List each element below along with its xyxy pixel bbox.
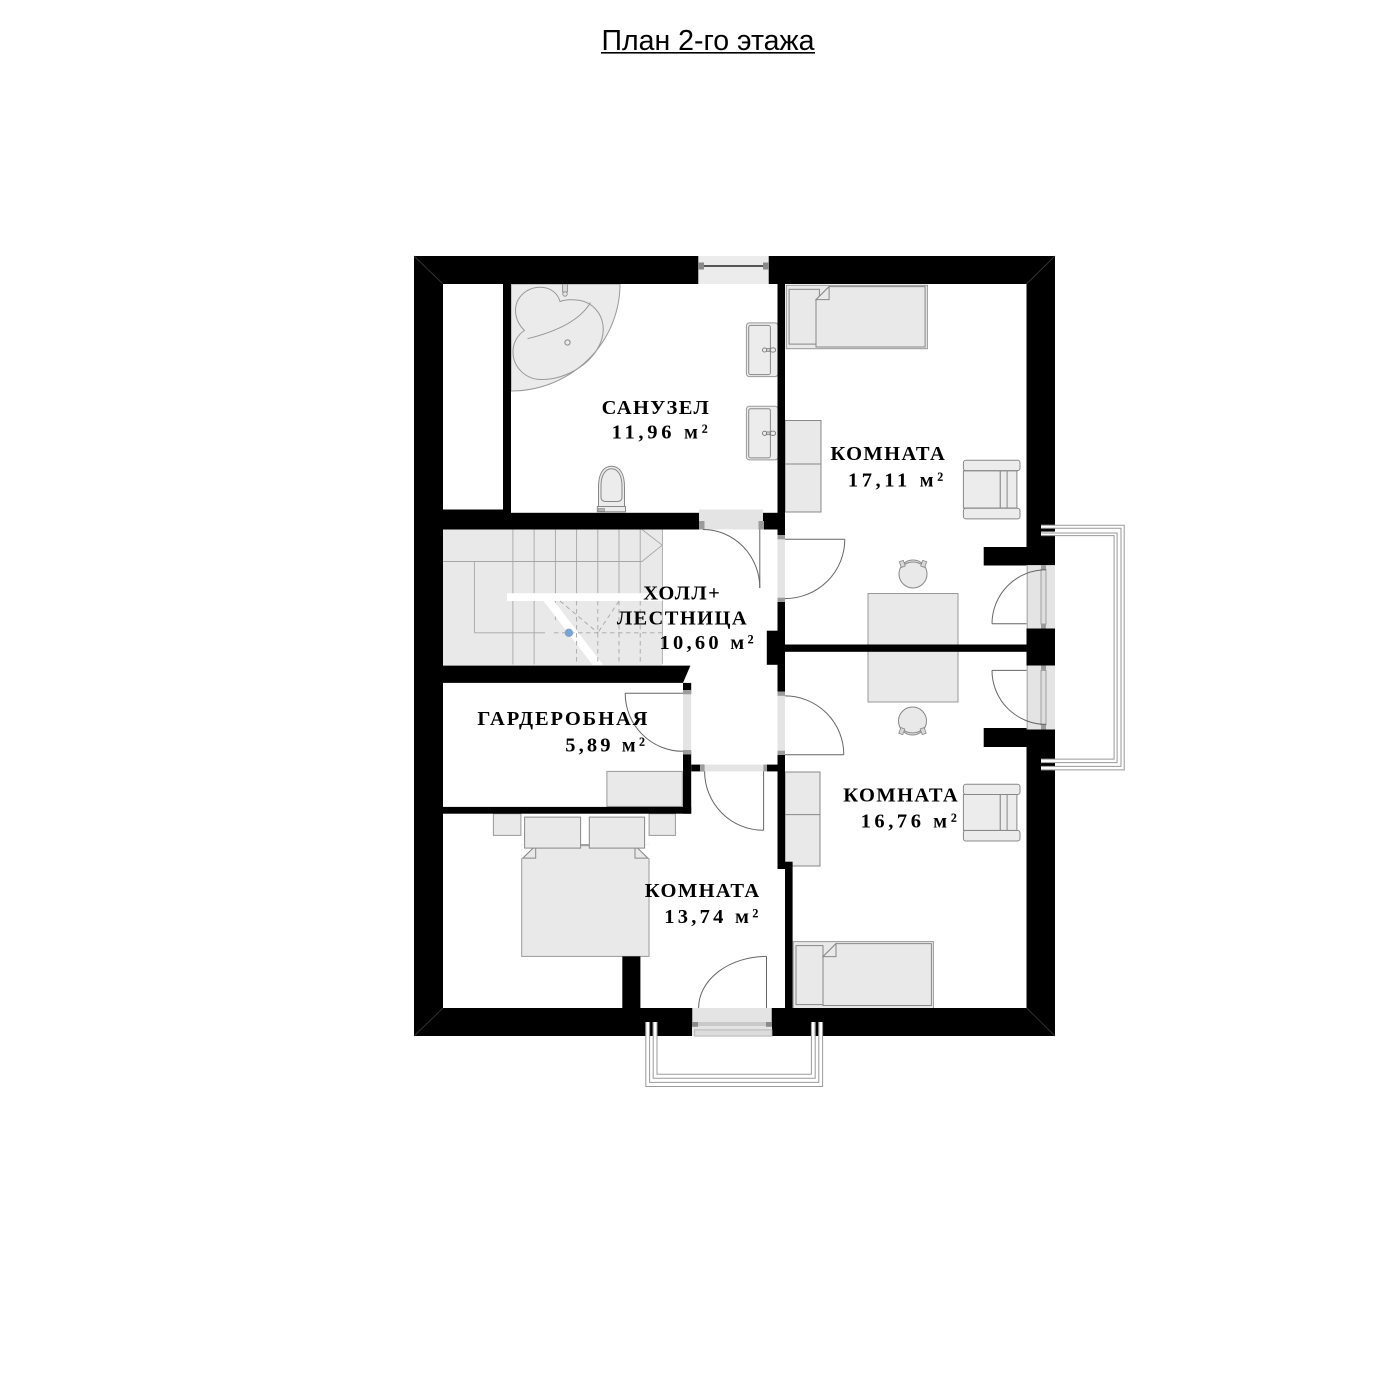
svg-text:ХОЛЛ+: ХОЛЛ+	[643, 582, 721, 604]
svg-text:КОМНАТА: КОМНАТА	[645, 880, 761, 902]
svg-text:САНУЗЕЛ: САНУЗЕЛ	[602, 397, 711, 419]
svg-text:ЛЕСТНИЦА: ЛЕСТНИЦА	[617, 608, 748, 630]
svg-text:17,11 м²: 17,11 м²	[848, 470, 947, 492]
svg-text:11,96 м²: 11,96 м²	[612, 422, 712, 444]
svg-text:13,74 м²: 13,74 м²	[664, 906, 761, 928]
svg-text:КОМНАТА: КОМНАТА	[843, 784, 959, 806]
svg-text:5,89 м²: 5,89 м²	[565, 735, 648, 757]
svg-text:16,76 м²: 16,76 м²	[861, 811, 961, 833]
svg-text:10,60 м²: 10,60 м²	[660, 632, 757, 654]
svg-text:ГАРДЕРОБНАЯ: ГАРДЕРОБНАЯ	[477, 708, 649, 730]
svg-text:КОМНАТА: КОМНАТА	[830, 443, 946, 465]
